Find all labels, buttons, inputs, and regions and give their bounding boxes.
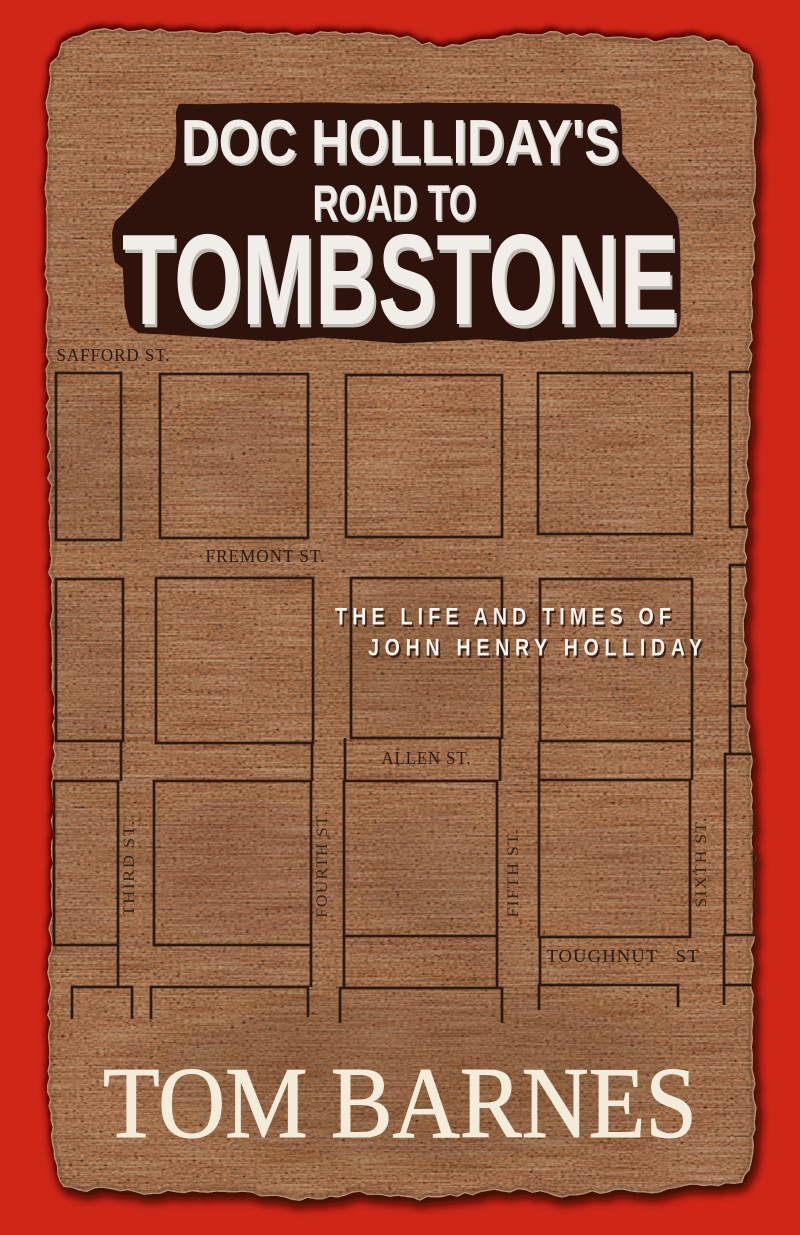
svg-text:TOUGHNUT ST: TOUGHNUT ST (546, 947, 699, 966)
svg-text:JOHN HENRY HOLLIDAY: JOHN HENRY HOLLIDAY (368, 633, 708, 661)
svg-text:FOURTH ST.: FOURTH ST. (313, 810, 331, 918)
svg-text:THIRD ST.: THIRD ST. (120, 819, 137, 916)
svg-text:DOC HOLLIDAY'S: DOC HOLLIDAY'S (181, 108, 619, 177)
svg-text:TOM BARNES: TOM BARNES (103, 1047, 697, 1160)
svg-text:FIFTH ST.: FIFTH ST. (504, 828, 522, 917)
svg-text:ALLEN ST.: ALLEN ST. (382, 749, 472, 768)
svg-text:THE LIFE AND TIMES OF: THE LIFE AND TIMES OF (335, 602, 676, 630)
svg-text:SIXTH ST.: SIXTH ST. (692, 816, 710, 907)
svg-text:FREMONT ST.: FREMONT ST. (206, 547, 326, 566)
svg-text:TOMBSTONE: TOMBSTONE (122, 208, 678, 352)
